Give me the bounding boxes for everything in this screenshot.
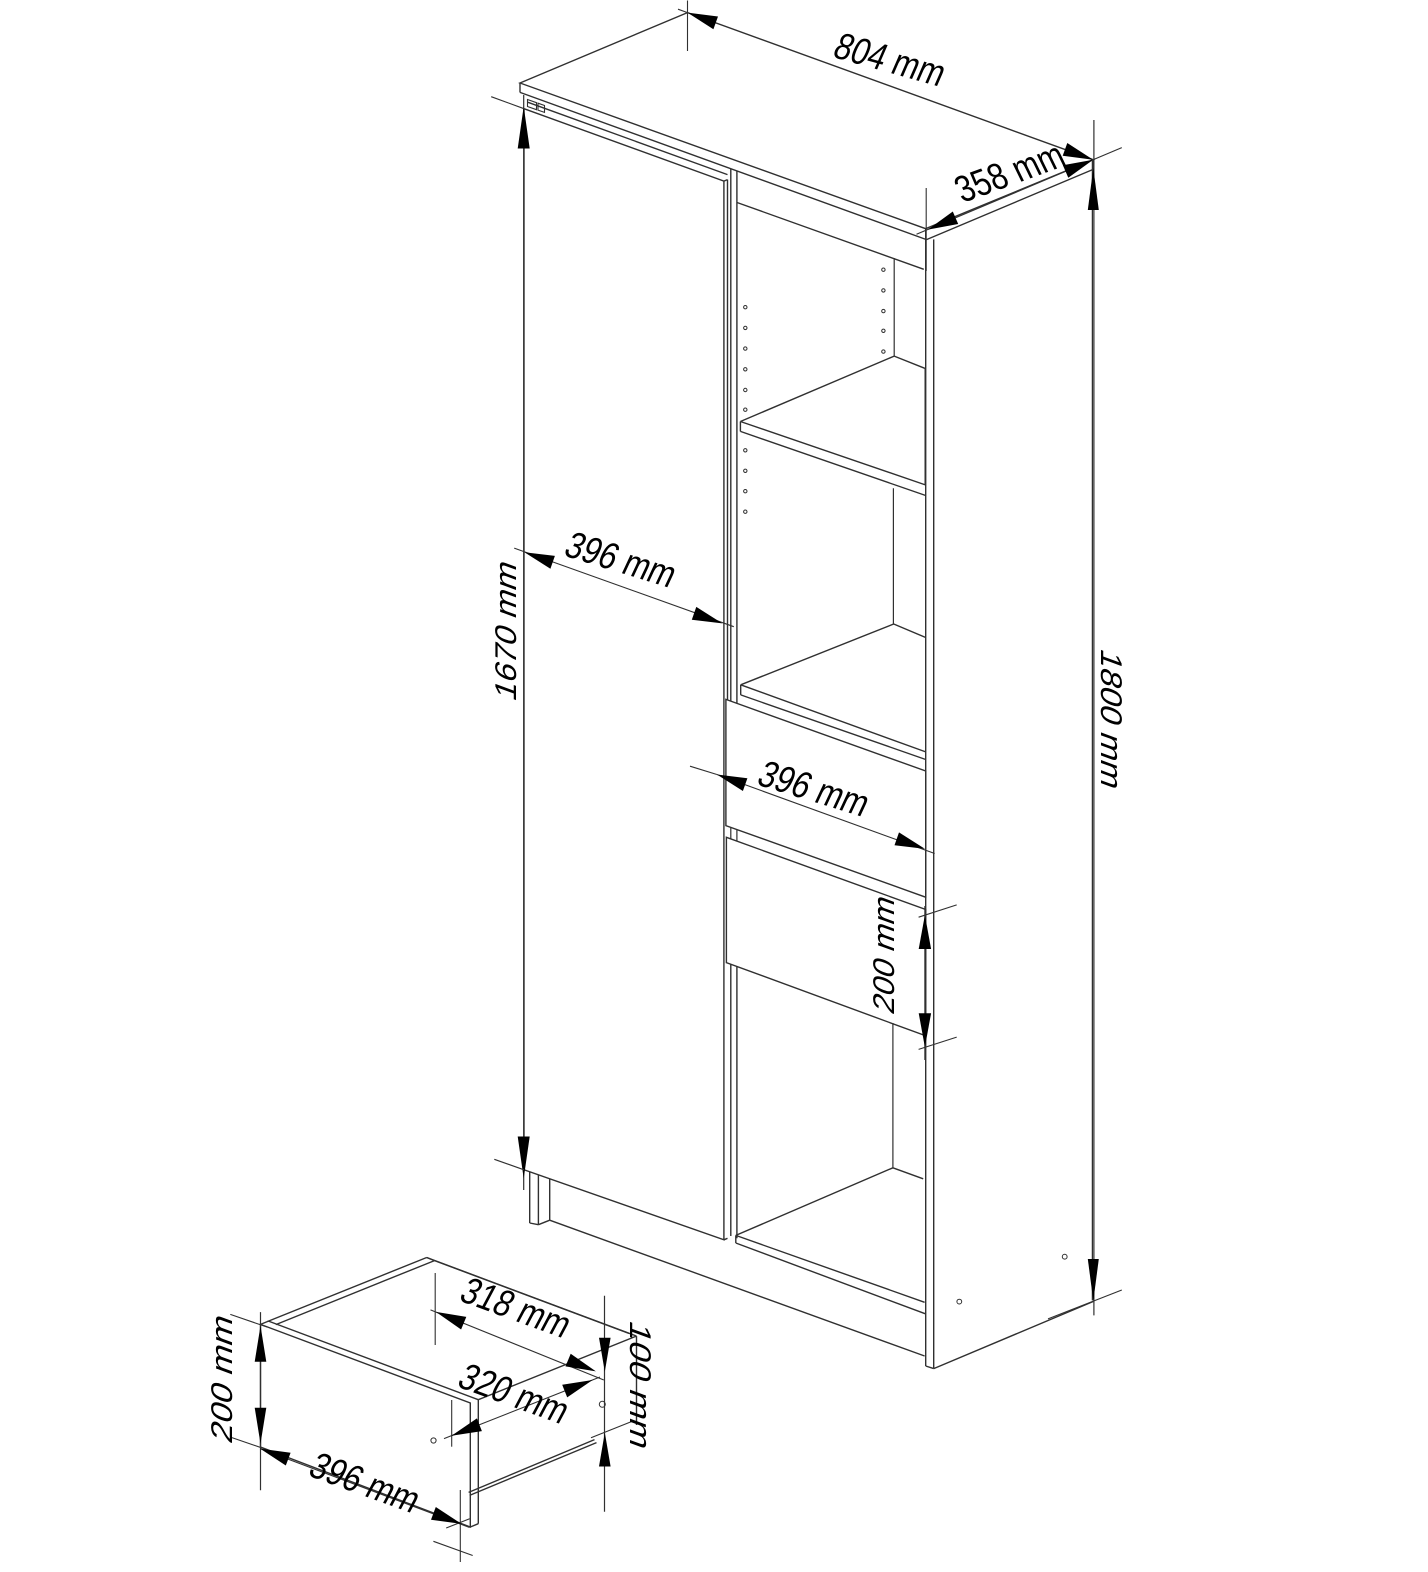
svg-text:358 mm: 358 mm: [948, 135, 1072, 211]
svg-text:396 mm: 396 mm: [302, 1445, 428, 1521]
svg-text:1670 mm: 1670 mm: [489, 555, 523, 705]
svg-text:200 mm: 200 mm: [205, 1309, 239, 1447]
svg-text:200 mm: 200 mm: [867, 890, 901, 1018]
svg-text:396 mm: 396 mm: [558, 524, 683, 596]
svg-text:804 mm: 804 mm: [827, 25, 952, 95]
svg-text:100 mm: 100 mm: [623, 1317, 657, 1455]
svg-text:318 mm: 318 mm: [453, 1270, 579, 1346]
svg-text:396 mm: 396 mm: [751, 753, 876, 825]
svg-text:1800 mm: 1800 mm: [1094, 645, 1128, 795]
